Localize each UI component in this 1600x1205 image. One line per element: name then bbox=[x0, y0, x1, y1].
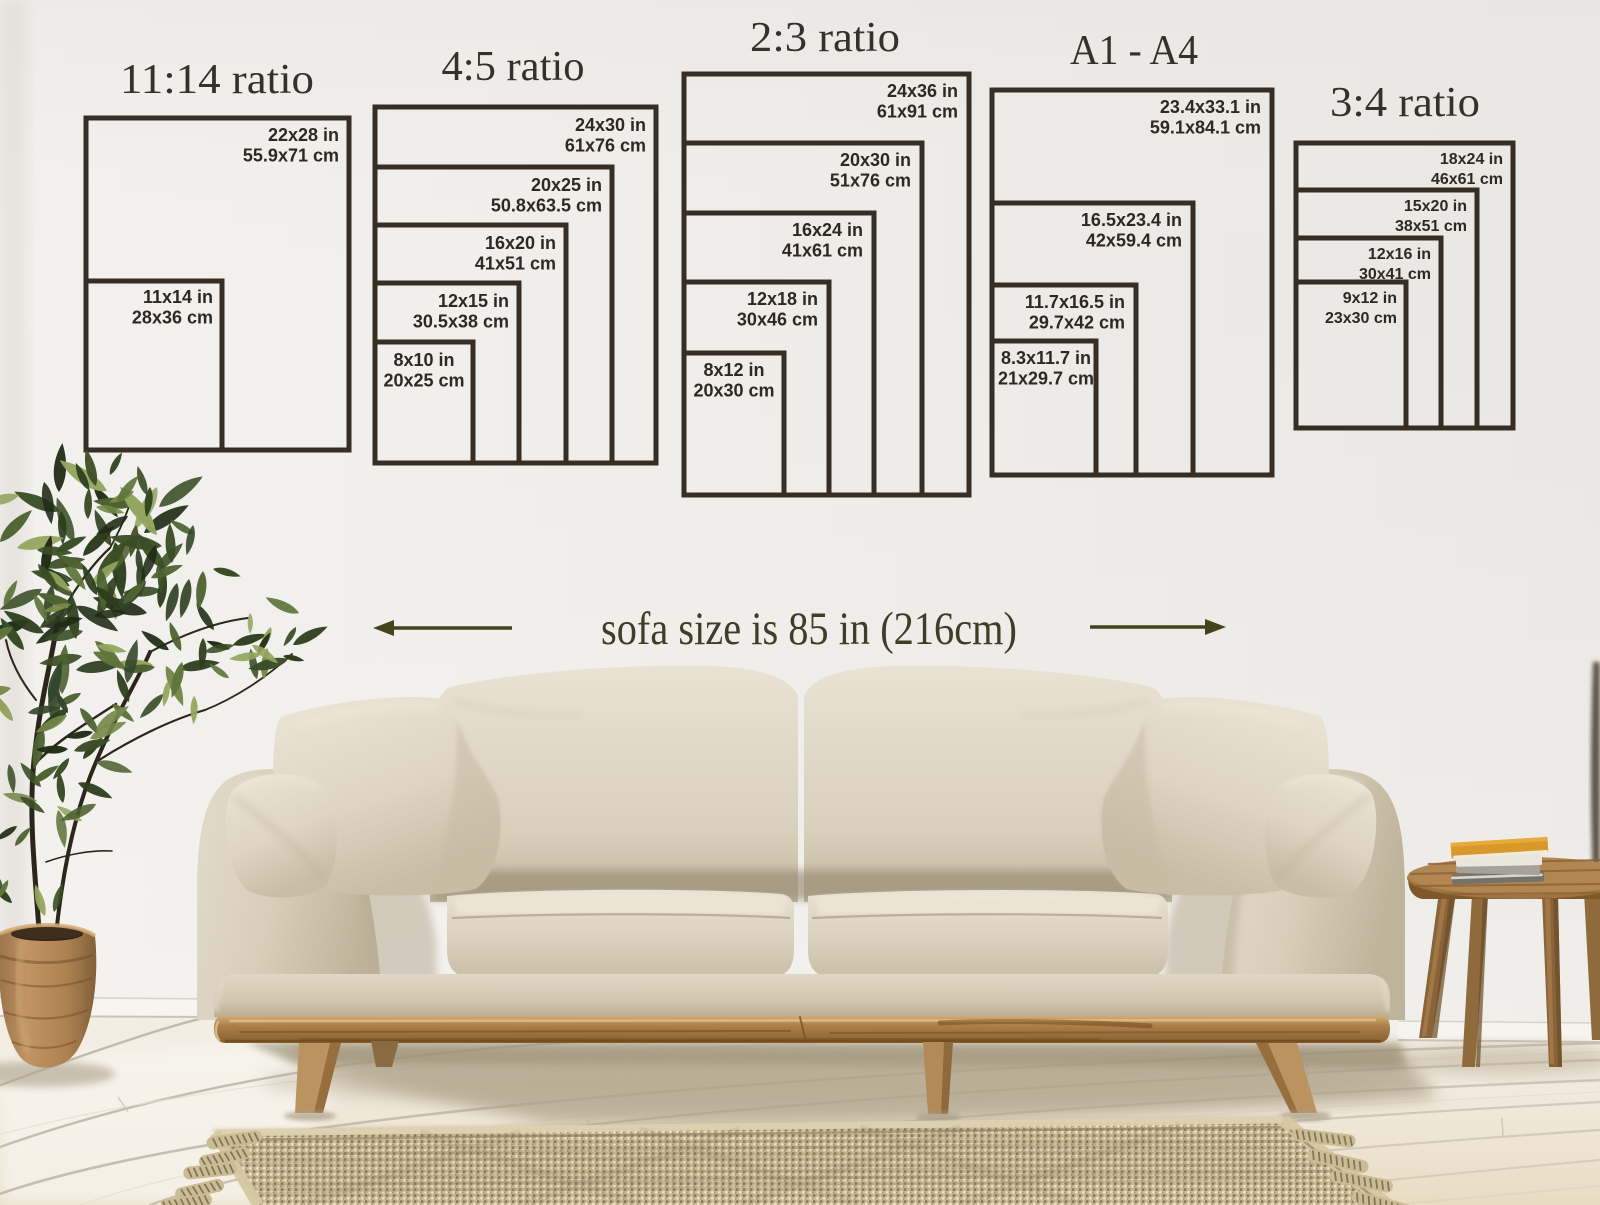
svg-text:4:5 ratio: 4:5 ratio bbox=[442, 44, 585, 90]
svg-text:8x10 in20x25 cm: 8x10 in20x25 cm bbox=[383, 350, 464, 391]
svg-text:8.3x11.7 in21x29.7 cm: 8.3x11.7 in21x29.7 cm bbox=[998, 348, 1094, 389]
svg-text:16x20 in41x51 cm: 16x20 in41x51 cm bbox=[475, 233, 556, 274]
svg-text:11x14 in28x36 cm: 11x14 in28x36 cm bbox=[132, 287, 213, 328]
svg-text:20x30 in51x76 cm: 20x30 in51x76 cm bbox=[830, 150, 911, 191]
svg-text:A1 - A4: A1 - A4 bbox=[1070, 28, 1198, 74]
svg-text:24x30 in61x76 cm: 24x30 in61x76 cm bbox=[565, 115, 646, 156]
svg-text:sofa size is 85 in (216cm): sofa size is 85 in (216cm) bbox=[601, 603, 1017, 655]
svg-text:12x18 in30x46 cm: 12x18 in30x46 cm bbox=[737, 289, 818, 330]
svg-text:3:4 ratio: 3:4 ratio bbox=[1330, 80, 1480, 126]
svg-text:23.4x33.1 in59.1x84.1 cm: 23.4x33.1 in59.1x84.1 cm bbox=[1150, 97, 1261, 138]
svg-text:16.5x23.4 in42x59.4 cm: 16.5x23.4 in42x59.4 cm bbox=[1081, 210, 1182, 251]
svg-text:16x24 in41x61 cm: 16x24 in41x61 cm bbox=[782, 220, 863, 261]
svg-text:11.7x16.5 in29.7x42 cm: 11.7x16.5 in29.7x42 cm bbox=[1025, 292, 1125, 333]
svg-text:11:14 ratio: 11:14 ratio bbox=[120, 57, 314, 103]
svg-text:8x12 in20x30 cm: 8x12 in20x30 cm bbox=[693, 360, 774, 401]
svg-text:2:3 ratio: 2:3 ratio bbox=[750, 15, 900, 61]
svg-text:24x36 in61x91 cm: 24x36 in61x91 cm bbox=[877, 81, 958, 122]
